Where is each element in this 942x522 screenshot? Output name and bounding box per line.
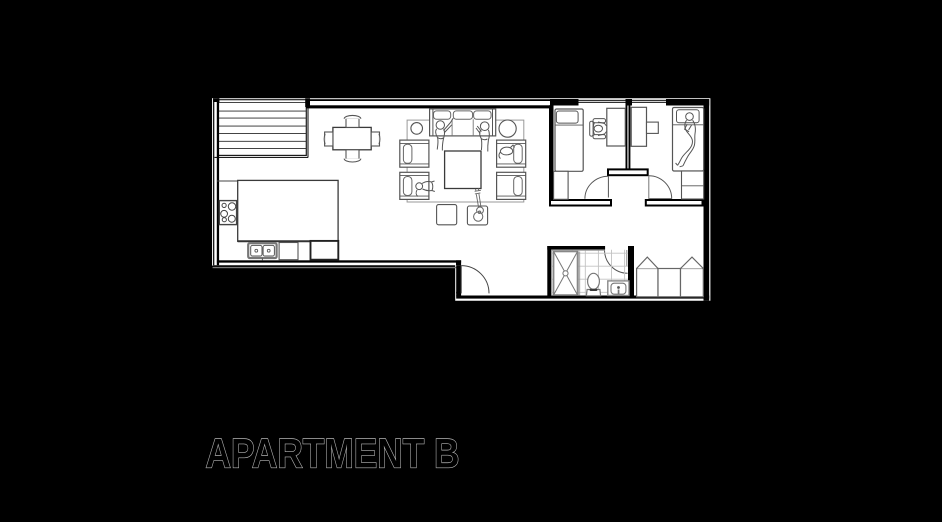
svg-text:APARTMENT B: APARTMENT B bbox=[206, 429, 460, 476]
